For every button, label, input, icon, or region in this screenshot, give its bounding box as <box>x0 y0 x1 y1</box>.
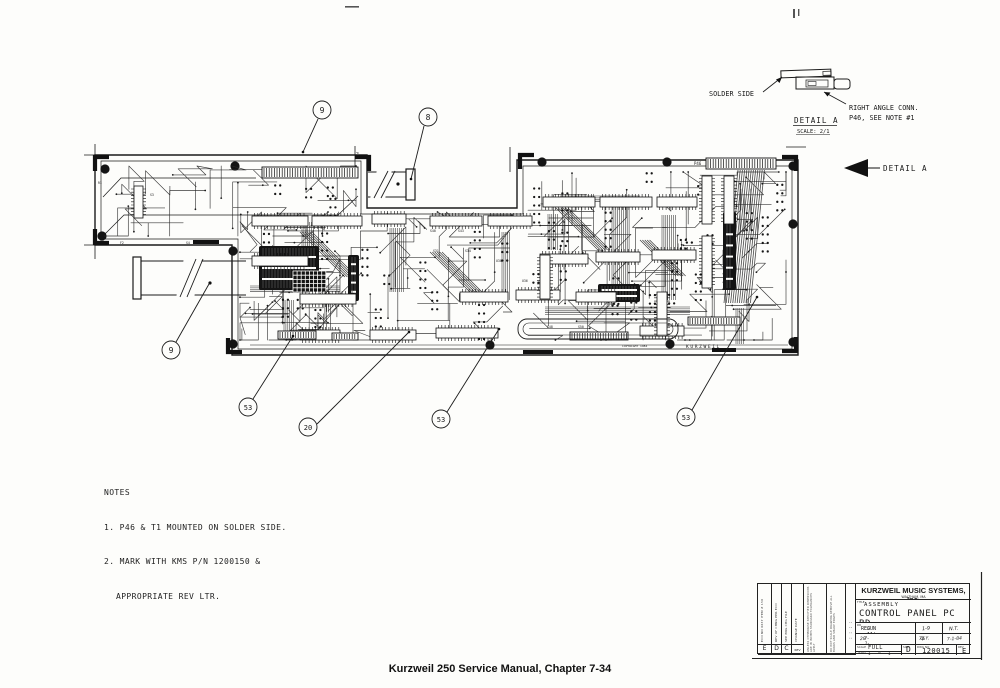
via <box>737 218 739 220</box>
pad-dot <box>375 308 377 310</box>
kurzweil-silk: KURZWEIL <box>686 344 721 350</box>
dark-ic-slot <box>351 263 356 265</box>
pad-dot <box>548 239 550 241</box>
p46-label: P46 <box>694 161 702 166</box>
callout-9-top: 9 <box>302 101 331 153</box>
pad-dot <box>751 212 753 214</box>
via <box>626 189 628 191</box>
detail-a-title: DETAIL A <box>794 116 839 125</box>
pad-dot <box>334 206 336 208</box>
pad-dot <box>767 250 769 252</box>
pad-dot <box>282 307 284 309</box>
pad-dot <box>361 274 363 276</box>
pad-dot <box>762 225 764 227</box>
pad-dot <box>321 258 323 260</box>
via <box>437 211 439 213</box>
pad-dot <box>287 307 289 309</box>
pad-dot <box>646 181 648 183</box>
dark-ic-slot <box>601 289 637 291</box>
pad-dot <box>533 196 535 198</box>
svg-text:9: 9 <box>320 106 325 115</box>
pad-dot <box>274 184 276 186</box>
pad-dot <box>533 187 535 189</box>
via <box>195 208 197 210</box>
dip-ic <box>312 216 362 226</box>
svg-text:53: 53 <box>682 414 690 422</box>
pad-dot <box>700 299 702 301</box>
via <box>133 231 135 233</box>
rev-col-c: SEE ENG CHG FILE C <box>782 584 792 655</box>
pad-dot <box>566 192 568 194</box>
dip-ic <box>652 250 696 260</box>
via <box>650 307 652 309</box>
pad-dot <box>671 288 673 290</box>
checked-cell: 1-9 <box>916 623 943 634</box>
via <box>247 211 249 213</box>
pad-dot <box>329 206 331 208</box>
pad-dot <box>282 299 284 301</box>
via <box>147 235 149 237</box>
pad-dot <box>751 237 753 239</box>
dip-ic <box>657 197 697 207</box>
dip-ic <box>252 256 308 266</box>
pad-dot <box>671 271 673 273</box>
pad-dot <box>746 212 748 214</box>
pcb-trace <box>131 223 184 236</box>
via <box>305 313 307 315</box>
pad-dot <box>483 304 485 306</box>
rev-letter-d: D <box>772 644 781 654</box>
pad-dot <box>279 184 281 186</box>
callout-53-a: 53 <box>239 335 294 416</box>
vertical-bus <box>502 232 510 300</box>
pad-dot <box>560 270 562 272</box>
via <box>589 327 591 329</box>
pad-dot <box>321 241 323 243</box>
pcb-trace <box>240 303 282 317</box>
pad-dot <box>375 317 377 319</box>
pad-dot <box>560 245 562 247</box>
via <box>648 282 650 284</box>
pad-dot <box>287 316 289 318</box>
refdes-label: S50 <box>578 325 584 329</box>
dip-ic <box>252 216 308 226</box>
pcb-trace <box>210 166 246 209</box>
drawing-title: CONTROL PANEL PC BD <box>859 609 971 623</box>
pad-dot <box>762 250 764 252</box>
dip-ic <box>543 197 595 207</box>
refdes-label: F2 <box>120 241 124 245</box>
pad-dot <box>366 274 368 276</box>
via <box>387 317 389 319</box>
pad-dot <box>609 237 611 239</box>
pad-dot <box>776 209 778 211</box>
via <box>682 171 684 173</box>
pad-dot <box>762 216 764 218</box>
note-1: 1. P46 & T1 MOUNTED ON SOLDER SIDE. <box>104 522 287 534</box>
edge-connector <box>262 167 358 178</box>
pcb-trace <box>240 308 250 335</box>
rev-letter-hdr: REV <box>792 644 803 654</box>
pad-dot <box>533 221 535 223</box>
pad-dot <box>287 299 289 301</box>
via <box>743 230 745 232</box>
pad-dot <box>680 239 682 241</box>
edge-connector <box>688 317 740 325</box>
pad-dot <box>548 222 550 224</box>
pad-dot <box>268 241 270 243</box>
pcb-trace <box>666 172 707 188</box>
assembly-label: ASSEMBLY <box>864 602 899 608</box>
pad-dot <box>474 248 476 250</box>
pad-dot <box>506 242 508 244</box>
pad-dot <box>380 317 382 319</box>
pad-dot <box>651 172 653 174</box>
pad-dot <box>611 313 613 315</box>
dip-ic <box>460 292 508 302</box>
pad-dot <box>383 283 385 285</box>
via <box>541 233 543 235</box>
via <box>220 197 222 199</box>
pad-dot <box>383 274 385 276</box>
pad-dot <box>380 308 382 310</box>
pad-dot <box>649 302 651 304</box>
approved-cell: N.T. <box>943 623 971 634</box>
scale-cell: SCALE FULL SHEET 1 OF 1 <box>856 645 902 655</box>
pad-dot <box>326 241 328 243</box>
pad-dot <box>314 317 316 319</box>
vertical-bus <box>390 228 403 292</box>
pad-dot <box>532 282 534 284</box>
via <box>390 288 392 290</box>
via <box>677 235 679 237</box>
pad-dot <box>751 220 753 222</box>
dip-ic <box>488 216 532 226</box>
svg-text:53: 53 <box>437 416 445 424</box>
pad-dot <box>604 246 606 248</box>
dip-ic <box>430 216 482 226</box>
dip-ic <box>436 328 498 338</box>
refdes-label: U30 <box>496 259 502 263</box>
pad-dot <box>686 241 688 243</box>
pad-dot <box>781 192 783 194</box>
via <box>711 296 713 298</box>
via <box>739 183 741 185</box>
pad-dot <box>321 249 323 251</box>
pad-dot <box>538 213 540 215</box>
size-value: D <box>906 645 911 654</box>
drawn-by: REG JUN 11' 84 <box>861 626 867 632</box>
pad-dot <box>282 316 284 318</box>
company-cell: KURZWEIL MUSIC SYSTEMS, Inc. WALTHAM, MA <box>856 584 971 600</box>
pad-dot <box>565 245 567 247</box>
pad-dot <box>560 279 562 281</box>
rev-value: E <box>962 647 966 655</box>
pad-dot <box>319 317 321 319</box>
pad-dot <box>380 325 382 327</box>
pad-dot <box>474 239 476 241</box>
dwg-no-value: 120015 <box>922 647 950 655</box>
dip-ic <box>657 292 667 336</box>
pcb-trace <box>170 191 206 237</box>
via <box>756 271 758 273</box>
via <box>469 242 471 244</box>
pad-dot <box>479 231 481 233</box>
svg-text:53: 53 <box>244 404 252 412</box>
pad-dot <box>263 233 265 235</box>
via <box>571 172 573 174</box>
notes-block: NOTES 1. P46 & T1 MOUNTED ON SOLDER SIDE… <box>104 464 287 614</box>
via <box>327 211 329 213</box>
pad-dot <box>305 188 307 190</box>
callout-20: 20 <box>299 331 410 436</box>
via <box>379 252 381 254</box>
via <box>387 233 389 235</box>
pad-dot <box>366 257 368 259</box>
via <box>237 182 239 184</box>
pcb-trace <box>548 224 595 253</box>
rev-col-d: REV OF CHNG PER ECO D <box>772 584 782 655</box>
dwg-no-cell: DWG NO 120015 <box>916 645 957 655</box>
pad-dot <box>388 283 390 285</box>
detail-conn-plug <box>834 79 850 89</box>
pad-dot <box>762 242 764 244</box>
pad-dot <box>776 184 778 186</box>
title-block: ECO NO 0637 ITEM # 150 E REV OF CHNG PER… <box>757 583 970 654</box>
pcb-trace <box>754 332 763 340</box>
via <box>728 293 730 295</box>
via <box>450 246 452 248</box>
pad-dot <box>604 237 606 239</box>
via <box>294 242 296 244</box>
pad-dot <box>506 259 508 261</box>
notes-heading: NOTES <box>104 487 287 499</box>
pad-dot <box>609 220 611 222</box>
via <box>561 229 563 231</box>
rev-letter-c: C <box>782 644 791 654</box>
via <box>484 279 486 281</box>
pad-dot <box>305 196 307 198</box>
refdes-label: R1 <box>98 181 102 185</box>
via <box>564 303 566 305</box>
pad-dot <box>533 213 535 215</box>
pad-dot <box>326 258 328 260</box>
pad-dot <box>326 232 328 234</box>
pad-dot <box>537 282 539 284</box>
via <box>252 313 254 315</box>
pad-dot <box>424 287 426 289</box>
pad-dot <box>478 321 480 323</box>
pad-dot <box>327 195 329 197</box>
pad-dot <box>746 229 748 231</box>
pad-dot <box>781 209 783 211</box>
pad-dot <box>695 290 697 292</box>
via <box>563 221 565 223</box>
via <box>319 268 321 270</box>
refdes-label: U36 <box>522 279 528 283</box>
pad-dot <box>695 273 697 275</box>
via <box>416 226 418 228</box>
pcb-trace <box>427 257 448 296</box>
pad-dot <box>334 198 336 200</box>
via <box>116 193 118 195</box>
via <box>121 192 123 194</box>
copyright-silk: COPYRIGHT 1984 <box>622 344 647 348</box>
pcb-trace <box>380 227 406 265</box>
pad-dot <box>635 310 637 312</box>
dip-ic <box>702 176 712 224</box>
pad-dot <box>483 312 485 314</box>
scan-artifacts <box>345 6 799 18</box>
pad-dot <box>436 300 438 302</box>
pad-dot <box>538 196 540 198</box>
dip-ic <box>372 214 406 224</box>
svg-text:9: 9 <box>169 346 174 355</box>
via <box>282 322 284 324</box>
pad-dot <box>366 249 368 251</box>
via <box>369 293 371 295</box>
via <box>576 320 578 322</box>
via <box>559 249 561 251</box>
pad-dot <box>767 216 769 218</box>
via <box>249 307 251 309</box>
release-cell: 7-1-84 <box>943 634 971 645</box>
via <box>239 296 241 298</box>
page-caption: Kurzweil 250 Service Manual, Chapter 7-3… <box>0 663 1000 675</box>
via <box>784 209 786 211</box>
dip-ic <box>600 197 652 207</box>
pcb-components <box>131 158 776 343</box>
via <box>778 171 780 173</box>
via <box>322 235 324 237</box>
dip-ic <box>724 176 734 224</box>
pad-dot <box>361 249 363 251</box>
via <box>785 271 787 273</box>
pcb-trace <box>391 289 410 334</box>
pad-dot <box>617 277 619 279</box>
via <box>448 296 450 298</box>
pad-dot <box>612 277 614 279</box>
company-city: WALTHAM, MA <box>856 595 971 599</box>
refdes-label: S34 <box>465 249 471 253</box>
dark-ic-slot <box>351 282 356 284</box>
note-2-cont: APPROPRIATE REV LTR. <box>104 591 287 603</box>
pad-dot <box>604 212 606 214</box>
pad-dot <box>548 230 550 232</box>
pad-dot <box>685 239 687 241</box>
rev-col-e: ECO NO 0637 ITEM # 150 E <box>758 584 772 655</box>
pad-dot <box>566 232 568 234</box>
via <box>296 229 298 231</box>
via <box>687 171 689 173</box>
pad-dot <box>553 247 555 249</box>
ribbon-cable-right <box>368 169 415 200</box>
pad-dot <box>609 246 611 248</box>
pad-dot <box>751 229 753 231</box>
refdes-label: S3 <box>150 193 154 197</box>
pad-dot <box>479 248 481 250</box>
pad-dot <box>419 261 421 263</box>
pad-dot <box>310 196 312 198</box>
pad-dot <box>538 187 540 189</box>
pcb-trace <box>173 166 213 187</box>
via <box>743 339 745 341</box>
refdes-label: S31 <box>433 249 439 253</box>
qa-cell: 76 Q.Y. <box>916 634 943 645</box>
via <box>710 289 712 291</box>
dip-ic <box>300 294 356 304</box>
pad-dot <box>419 287 421 289</box>
pad-dot <box>319 326 321 328</box>
pcb-trace <box>633 218 667 227</box>
via <box>570 211 572 213</box>
pad-dot <box>302 307 304 309</box>
pad-dot <box>478 312 480 314</box>
via <box>683 244 685 246</box>
via <box>761 183 763 185</box>
pad-dot <box>424 278 426 280</box>
pad-dot <box>553 222 555 224</box>
via <box>736 205 738 207</box>
of-value: 1 <box>888 651 891 655</box>
pad-dot <box>561 192 563 194</box>
pad-dot <box>561 209 563 211</box>
pad-dot <box>746 237 748 239</box>
pad-dot <box>538 204 540 206</box>
pad-dot <box>548 247 550 249</box>
pad-dot <box>361 257 363 259</box>
via <box>733 308 735 310</box>
pad-dot <box>649 319 651 321</box>
pad-dot <box>361 266 363 268</box>
pad-dot <box>553 239 555 241</box>
via <box>348 199 350 201</box>
via <box>494 271 496 273</box>
via <box>731 305 733 307</box>
drawn-cell: DR REG JUN 11' 84 <box>856 623 916 634</box>
pad-dot <box>297 307 299 309</box>
pad-dot <box>676 288 678 290</box>
pad-dot <box>419 270 421 272</box>
pad-dot <box>691 241 693 243</box>
pad-dot <box>332 195 334 197</box>
callout-8: 8 <box>410 108 437 180</box>
pad-dot <box>319 309 321 311</box>
dip-ic <box>576 292 616 302</box>
via <box>239 251 241 253</box>
refdes-label: S43 <box>458 229 464 233</box>
pad-dot <box>697 185 699 187</box>
via <box>262 184 264 186</box>
pad-dot <box>604 220 606 222</box>
pad-dot <box>695 282 697 284</box>
via <box>334 250 336 252</box>
pad-dot <box>479 256 481 258</box>
tolerance-col-2: DO NOT SCALE DRAWING REMOVE ALL BURRS AN… <box>827 584 846 655</box>
via <box>628 272 630 274</box>
pad-dot <box>533 204 535 206</box>
note-2: 2. MARK WITH KMS P/N 1200150 & <box>104 556 287 568</box>
pad-dot <box>646 172 648 174</box>
pad-dot <box>501 242 503 244</box>
pad-dot <box>314 309 316 311</box>
rev-letter-e: E <box>758 644 771 654</box>
refdes-label: S40 <box>430 229 436 233</box>
via <box>434 256 436 258</box>
pad-dot <box>767 242 769 244</box>
via <box>288 292 290 294</box>
pcb-trace <box>343 189 356 212</box>
